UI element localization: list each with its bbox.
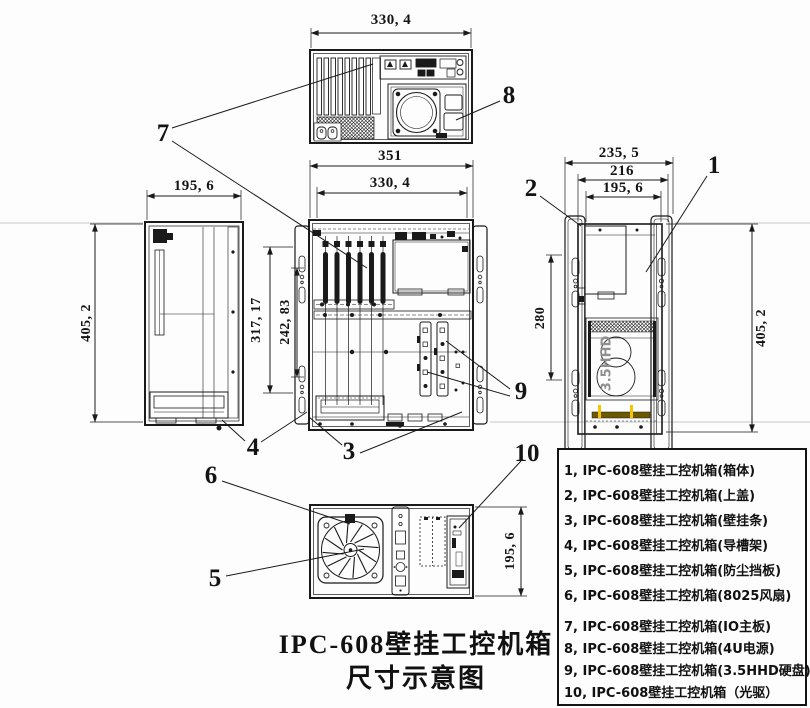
front-open-view [295, 220, 487, 430]
callout-4: 4 [233, 434, 273, 462]
legend-item-2: 2, IPC-608壁挂工控机箱(上盖) [564, 484, 805, 509]
drawing-title: IPC-608壁挂工控机箱 尺寸示意图 [278, 628, 554, 696]
dim-right-width-inner: 195, 6 [583, 180, 663, 197]
io-board-edge [395, 231, 468, 252]
dim-front-inner-width: 330, 4 [350, 175, 430, 192]
callout-6: 6 [191, 462, 231, 490]
hdd-brackets [417, 322, 465, 396]
legend-item-9: 9, IPC-608壁挂工控机箱(3.5HHD硬盘) [564, 661, 805, 683]
dim-left-view-width: 195, 6 [154, 178, 234, 195]
legend-item-1: 1, IPC-608壁挂工控机箱(箱体) [564, 459, 805, 484]
callout-2: 2 [511, 175, 551, 203]
front-fan-housing [316, 396, 384, 420]
psu-side [585, 226, 626, 299]
wall-bar-left [565, 216, 585, 452]
slot-covers [317, 58, 381, 115]
dim-right-inner-height: 280 [533, 278, 549, 358]
rear-view [310, 50, 472, 143]
io-shield [380, 56, 466, 79]
panel-fan [318, 514, 383, 583]
callout-1: 1 [694, 152, 734, 180]
dim-bottom-view-height: 195, 6 [503, 511, 519, 591]
dim-right-width-outer: 235, 5 [579, 145, 659, 162]
front-bottom-edge [313, 414, 469, 428]
dim-front-outer-width: 351 [350, 148, 430, 165]
hdd-side [586, 318, 658, 400]
legend-item-8: 8, IPC-608壁挂工控机箱(4U电源) [564, 639, 805, 661]
callout-10: 10 [505, 440, 549, 468]
psu-front [393, 240, 470, 295]
dim-top-view-width: 330, 4 [351, 12, 431, 29]
dim-left-view-height: 405, 2 [79, 283, 95, 363]
dim-front-height-inner: 242, 83 [278, 282, 294, 362]
callout-7: 7 [143, 120, 183, 148]
legend-item-4: 4, IPC-608壁挂工控机箱(导槽架) [564, 534, 805, 559]
right-side-view [565, 216, 672, 452]
legend-item-5: 5, IPC-608壁挂工控机箱(防尘挡板) [564, 559, 805, 584]
rear-vent [314, 117, 374, 141]
guide-strip-highlight [592, 405, 650, 418]
callout-5: 5 [195, 565, 235, 593]
legend-item-3: 3, IPC-608壁挂工控机箱(壁挂条) [564, 509, 805, 534]
psu-rear [388, 84, 466, 139]
legend-item-6: 6, IPC-608壁挂工控机箱(8025风扇) [564, 584, 805, 609]
mount-bracket-right [473, 226, 487, 424]
panel-vent [420, 517, 445, 566]
optical-drive [447, 516, 469, 588]
dim-right-view-height: 405, 2 [754, 288, 770, 368]
dim-right-width-mid: 216 [582, 163, 662, 180]
left-side-view [145, 222, 243, 431]
legend-item-7: 7, IPC-608壁挂工控机箱(IO主板) [564, 617, 805, 639]
dim-front-height-outer: 317, 17 [249, 280, 265, 360]
drawing-title-line1: IPC-608壁挂工控机箱 [278, 628, 554, 662]
callout-9: 9 [501, 378, 541, 406]
callout-8: 8 [489, 82, 529, 110]
alignment-guides [0, 223, 810, 422]
control-strip [392, 507, 409, 595]
hdd-label: 3.5HHD [600, 334, 615, 394]
legend-item-10: 10, IPC-608壁挂工控机箱（光驱） [564, 683, 805, 705]
legend-box: 1, IPC-608壁挂工控机箱(箱体) 2, IPC-608壁挂工控机箱(上盖… [557, 448, 807, 706]
drawing-title-line2: 尺寸示意图 [278, 662, 554, 696]
dimension-diagram-page: 330, 4 351 330, 4 195, 6 235, 5 216 195,… [0, 0, 810, 708]
callout-3: 3 [329, 438, 369, 466]
